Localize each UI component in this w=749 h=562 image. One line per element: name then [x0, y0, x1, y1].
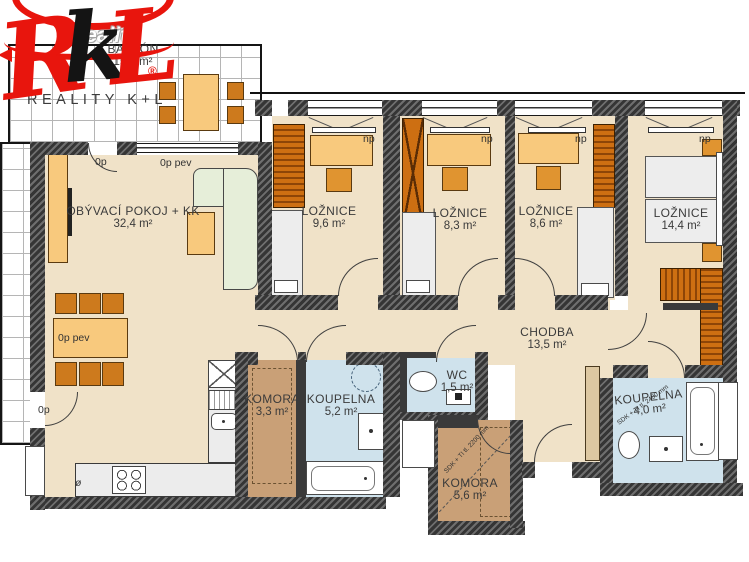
sofa-vertical	[223, 168, 258, 290]
watermark-ring-icon	[12, 0, 174, 30]
wall	[438, 415, 478, 428]
room-name: LOŽNICE	[654, 206, 709, 220]
room-name: KOUPELNA	[307, 392, 376, 406]
dining-chair	[79, 362, 101, 386]
balcony-table	[183, 74, 219, 131]
np-annotation: np	[699, 133, 711, 145]
room-name: LOŽNICE	[433, 206, 488, 220]
toilet-mark	[455, 393, 462, 400]
wall	[663, 303, 718, 310]
wall	[613, 365, 648, 378]
wardrobe	[593, 124, 615, 208]
wall	[600, 378, 613, 483]
bathtub-drain	[364, 477, 367, 480]
stove	[112, 466, 146, 494]
pillow	[274, 280, 298, 293]
room-area: 5,2 m²	[307, 406, 376, 418]
room-label-bedroom1: LOŽNICE 9,6 m²	[302, 204, 357, 230]
wall	[258, 142, 272, 300]
room-area: 14,4 m²	[654, 220, 709, 232]
chair	[326, 168, 352, 192]
door-annotation: 0p	[95, 156, 107, 168]
wall	[288, 100, 308, 116]
tv-cabinet	[48, 153, 68, 263]
wall	[382, 100, 422, 116]
room-label-storage2: KOMORA 5,6 m²	[442, 476, 498, 502]
fixed-window-annotation: 0p pev	[160, 157, 192, 169]
room-label-bedroom4: LOŽNICE 14,4 m²	[654, 206, 709, 232]
room-name: LOŽNICE	[519, 204, 574, 218]
living-window-fixed	[137, 143, 238, 153]
entrance-opening	[535, 464, 572, 476]
window	[645, 100, 722, 116]
room-label-bedroom2: LOŽNICE 8,3 m²	[433, 206, 488, 232]
wardrobe	[273, 124, 305, 208]
room-area: 15,5 m²	[107, 56, 158, 68]
wall	[615, 116, 628, 296]
wall	[117, 142, 137, 155]
room-area: 8,6 m²	[519, 218, 574, 230]
wall	[498, 295, 515, 310]
wall	[592, 100, 645, 116]
balcony-chair	[227, 82, 244, 100]
terrace-strip-floor	[0, 142, 30, 445]
dining-chair	[102, 293, 124, 314]
wardrobe	[700, 268, 723, 372]
desk	[518, 133, 579, 164]
wall	[522, 462, 535, 478]
table-annotation: 0p pev	[58, 332, 90, 344]
wall	[475, 352, 488, 420]
bath2-tub-drain	[700, 443, 703, 446]
room-area: 9,6 m²	[302, 218, 357, 230]
np-annotation: np	[363, 133, 375, 145]
door-annotation: 0p	[38, 404, 50, 416]
headboard	[716, 152, 723, 246]
room-area: 32,4 m²	[66, 218, 199, 230]
balcony-chair	[227, 106, 244, 124]
bath2-sink	[618, 431, 640, 459]
floor-plan: BALKÓN 15,5 m² OBÝVACÍ POKOJ + KK 32,4 m…	[0, 0, 749, 562]
room-label-wc: WC 1,5 m²	[441, 368, 474, 394]
wall	[30, 142, 88, 155]
diameter-annotation: ø	[75, 477, 81, 489]
room-name: KOMORA	[442, 476, 498, 490]
wall	[400, 352, 407, 418]
facade-line	[250, 92, 745, 94]
wall	[45, 497, 386, 509]
wall	[685, 365, 723, 378]
wall	[235, 352, 248, 497]
sink-drain	[222, 420, 225, 423]
wall	[378, 295, 458, 310]
balcony-chair	[159, 82, 176, 100]
wall	[30, 142, 45, 392]
room-area: 8,3 m²	[433, 220, 488, 232]
window	[515, 100, 592, 116]
dining-chair	[102, 362, 124, 386]
np-annotation: np	[575, 133, 587, 145]
room-label-balkon: BALKÓN 15,5 m²	[107, 42, 158, 68]
room-name: CHODBA	[520, 325, 574, 339]
shaft-wc	[402, 420, 435, 468]
wall	[255, 100, 272, 116]
room-label-storage1: KOMORA 3,3 m²	[244, 392, 300, 418]
wall	[248, 352, 258, 365]
room-label-living: OBÝVACÍ POKOJ + KK 32,4 m²	[66, 204, 199, 230]
room-name: LOŽNICE	[302, 204, 357, 218]
window	[422, 100, 497, 116]
wc-sink	[409, 371, 437, 392]
balcony-chair	[159, 106, 176, 124]
hall-cabinet	[585, 366, 600, 461]
room-label-bedroom3: LOŽNICE 8,6 m²	[519, 204, 574, 230]
shaft-bath	[718, 382, 738, 460]
dining-chair	[55, 362, 77, 386]
chair	[442, 167, 468, 191]
room-label-bathroom1: KOUPELNA 5,2 m²	[307, 392, 376, 418]
room-name: WC	[441, 368, 474, 382]
wall	[555, 295, 608, 310]
room-area: 3,3 m²	[244, 406, 300, 418]
double-bed-mattress	[645, 156, 717, 198]
dining-chair	[55, 293, 77, 314]
room-area: 1,5 m²	[441, 382, 474, 394]
chair	[536, 166, 561, 190]
wall	[505, 116, 515, 296]
wall	[255, 295, 338, 310]
vanity-drain	[369, 429, 373, 433]
room-name: OBÝVACÍ POKOJ + KK	[66, 204, 199, 218]
wall	[600, 483, 743, 496]
bath2-vanity-drain	[664, 447, 668, 451]
room-name: KOMORA	[244, 392, 300, 406]
window	[308, 100, 382, 116]
wall	[383, 116, 400, 296]
wall	[296, 360, 306, 497]
wall	[383, 352, 400, 497]
wall	[407, 352, 436, 358]
wall	[497, 100, 515, 116]
dining-chair	[79, 293, 101, 314]
shaft-column	[25, 446, 45, 496]
storage1-shelving	[252, 368, 292, 484]
room-area: 13,5 m²	[520, 339, 574, 351]
room-label-hall: CHODBA 13,5 m²	[520, 325, 574, 351]
pillow	[406, 280, 430, 293]
np-annotation: np	[481, 133, 493, 145]
washing-machine	[351, 362, 381, 392]
room-name: BALKÓN	[107, 42, 158, 56]
room-area: 5,6 m²	[442, 490, 498, 502]
kitchen-counter-horizontal	[75, 463, 240, 497]
sofa-horizontal	[193, 168, 227, 207]
